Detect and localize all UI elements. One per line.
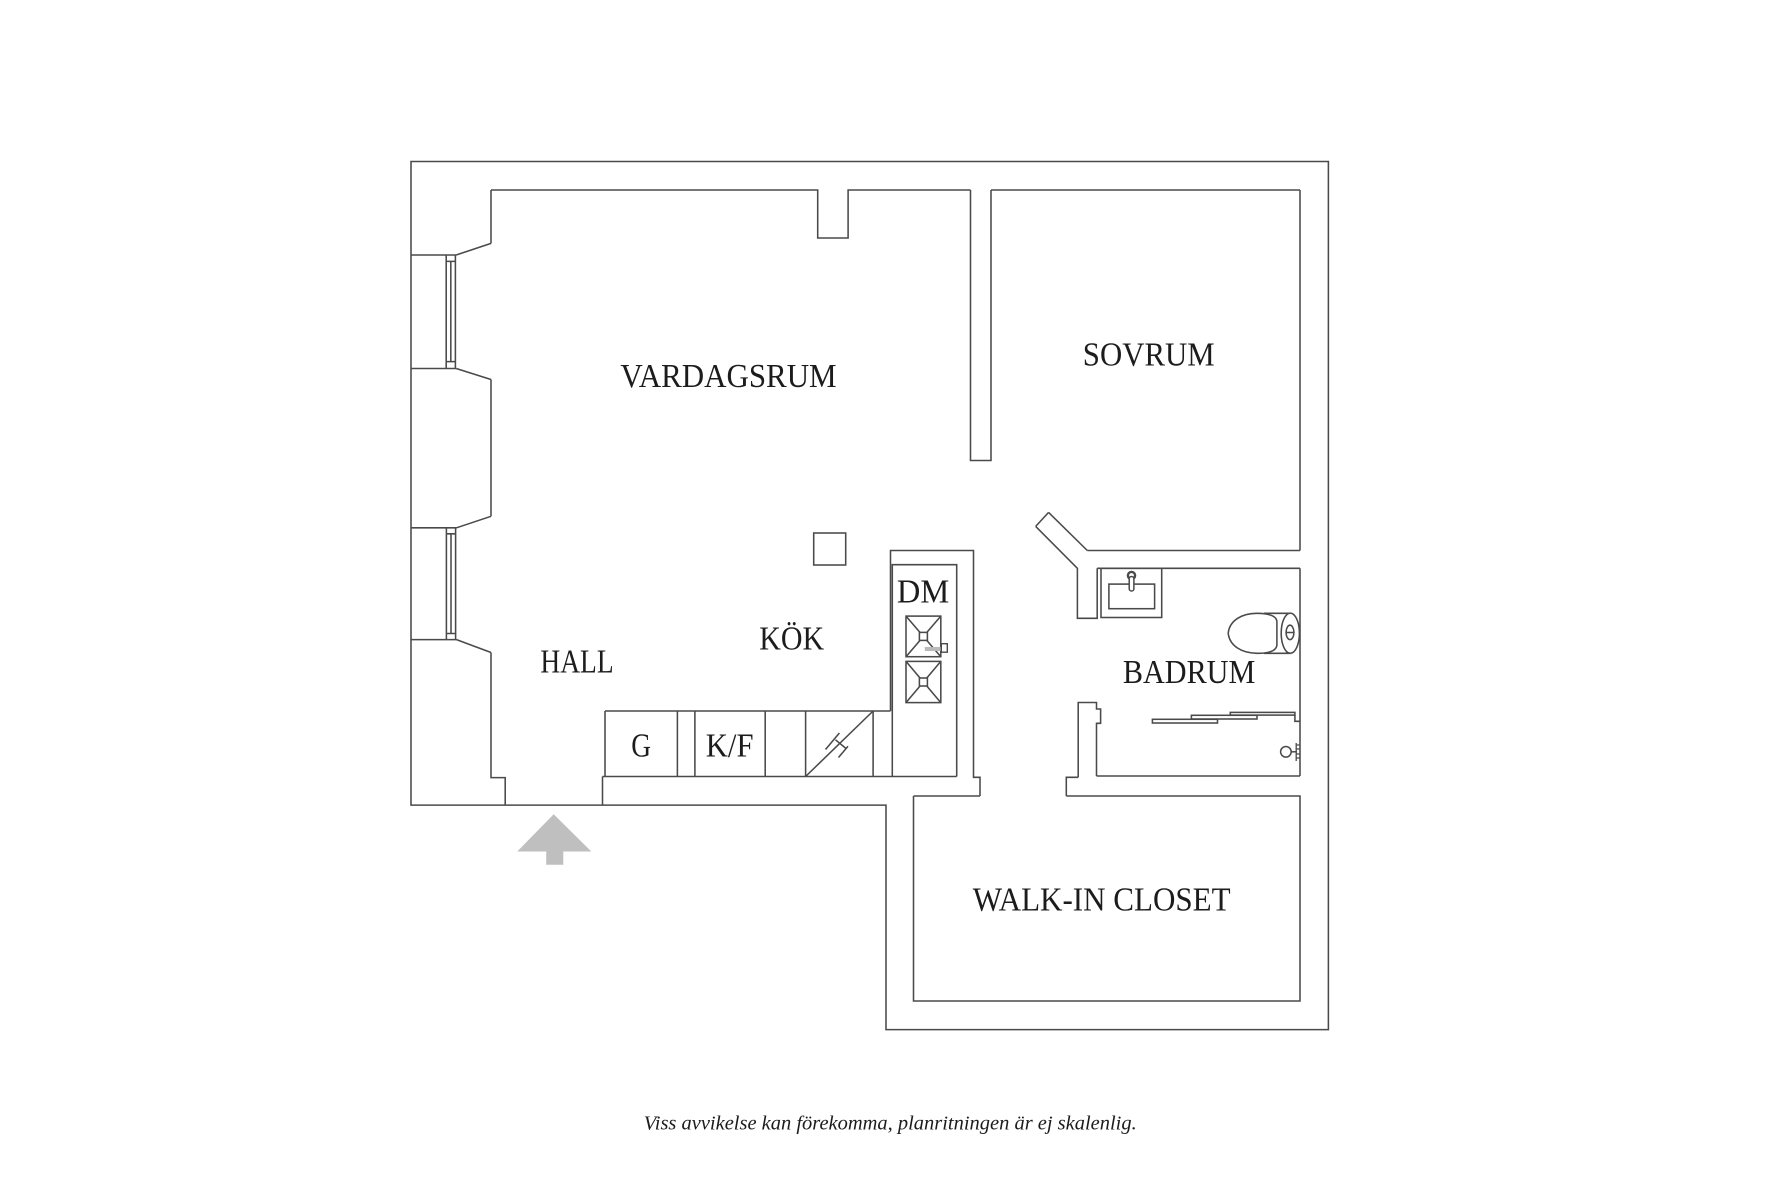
svg-text:BADRUM: BADRUM: [1123, 654, 1255, 691]
svg-text:SOVRUM: SOVRUM: [1083, 336, 1215, 373]
svg-text:K/F: K/F: [706, 727, 754, 764]
svg-text:Viss avvikelse kan förekomma,: Viss avvikelse kan förekomma, planritnin…: [644, 1112, 1137, 1134]
svg-text:HALL: HALL: [540, 644, 613, 681]
svg-text:VARDAGSRUM: VARDAGSRUM: [620, 358, 836, 395]
svg-text:DM: DM: [897, 574, 949, 611]
svg-text:G: G: [631, 727, 651, 764]
svg-text:WALK-IN CLOSET: WALK-IN CLOSET: [973, 881, 1231, 918]
svg-text:KÖK: KÖK: [759, 621, 824, 658]
